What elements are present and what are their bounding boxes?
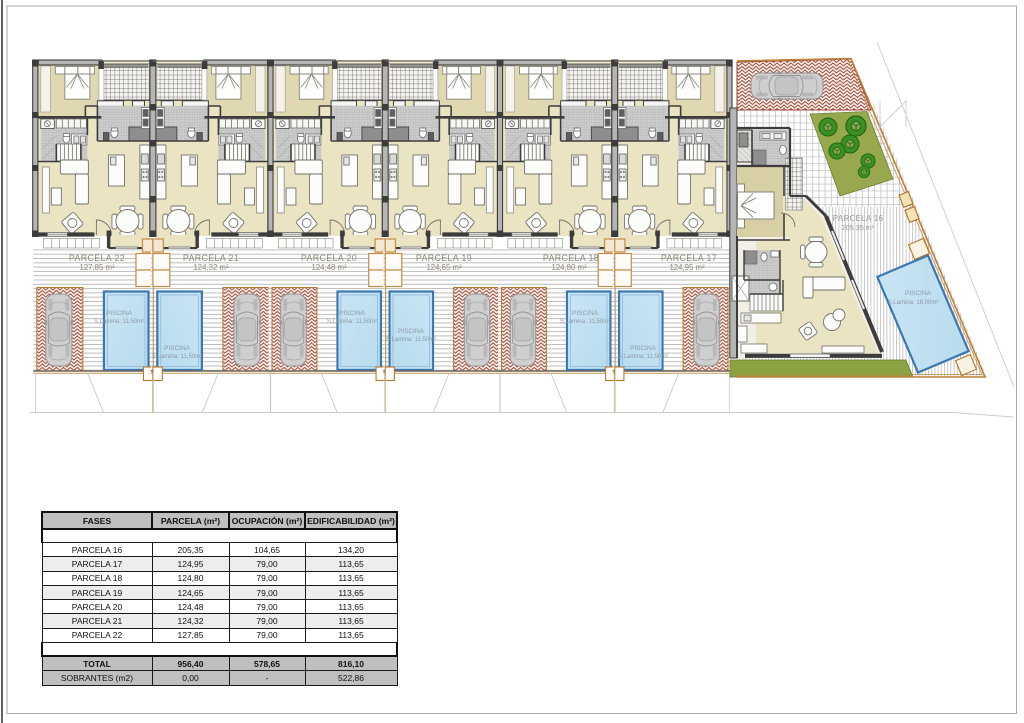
- svg-text:124,95 m²: 124,95 m²: [669, 263, 705, 272]
- svg-text:S.Lamina: 18,00m²: S.Lamina: 18,00m²: [888, 300, 939, 306]
- svg-text:S.Lamina: 11,50m²: S.Lamina: 11,50m²: [618, 354, 668, 360]
- svg-text:124,48 m²: 124,48 m²: [311, 263, 347, 272]
- svg-text:PISCINA: PISCINA: [630, 345, 657, 352]
- svg-text:PARCELA 17: PARCELA 17: [661, 253, 717, 263]
- svg-text:PISCINA: PISCINA: [572, 310, 599, 317]
- svg-text:S.Lamina: 11,50m²: S.Lamina: 11,50m²: [386, 337, 436, 343]
- svg-text:PISCINA: PISCINA: [164, 345, 191, 352]
- svg-text:S.Lamina: 11,50m²: S.Lamina: 11,50m²: [94, 319, 144, 325]
- svg-text:S.Lamina: 11,50m²: S.Lamina: 11,50m²: [560, 319, 610, 325]
- svg-text:PARCELA 18: PARCELA 18: [543, 253, 599, 263]
- svg-text:PISCINA: PISCINA: [106, 310, 133, 317]
- svg-text:124,65 m²: 124,65 m²: [426, 263, 462, 272]
- svg-text:124,32 m²: 124,32 m²: [193, 263, 229, 272]
- svg-text:PISCINA: PISCINA: [905, 290, 932, 297]
- svg-text:PARCELA 22: PARCELA 22: [69, 253, 125, 263]
- svg-text:S.Lamina: 11,50m²: S.Lamina: 11,50m²: [152, 354, 202, 360]
- svg-text:PARCELA 19: PARCELA 19: [416, 253, 472, 263]
- svg-text:124,80 m²: 124,80 m²: [551, 263, 587, 272]
- svg-text:PISCINA: PISCINA: [398, 328, 425, 335]
- svg-text:PARCELA 16: PARCELA 16: [833, 214, 884, 223]
- svg-text:PARCELA 20: PARCELA 20: [301, 253, 357, 263]
- svg-text:PISCINA: PISCINA: [339, 310, 366, 317]
- svg-text:PARCELA 21: PARCELA 21: [183, 253, 239, 263]
- svg-text:205,35 m²: 205,35 m²: [842, 223, 875, 232]
- svg-text:127,85 m²: 127,85 m²: [79, 263, 115, 272]
- svg-text:S.Lamina: 11,50m²: S.Lamina: 11,50m²: [327, 319, 377, 325]
